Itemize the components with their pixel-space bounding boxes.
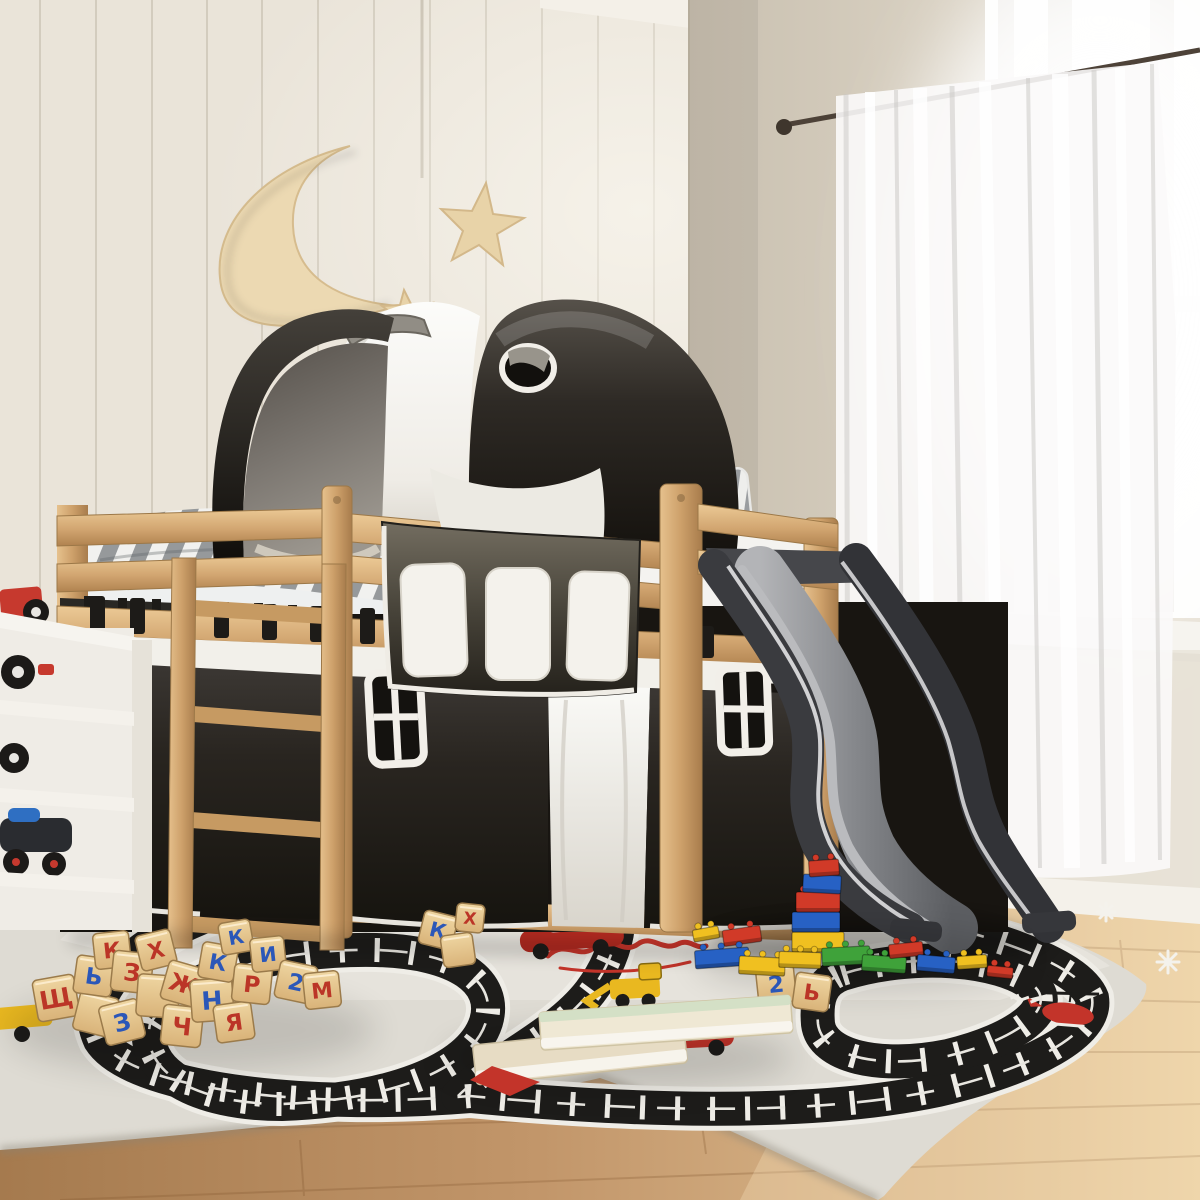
toy-block: Х: [455, 903, 486, 934]
block-letter: Х: [462, 908, 477, 929]
block-letter: Р: [242, 972, 261, 1000]
toy-block: Ь: [792, 972, 833, 1013]
ladder-stringer-left: [168, 558, 196, 948]
toy-brick: [779, 945, 822, 969]
block-letter: Щ: [37, 982, 75, 1016]
pocket-2: [486, 568, 550, 680]
block-letter: Я: [224, 1009, 245, 1037]
block-letter: И: [258, 942, 277, 968]
product-photo: ЩЬКЗЗХЧЖНККЯРИ2МКХ2Ь: [0, 0, 1200, 1200]
shelf-toy-wheel-mid: [0, 743, 29, 773]
block-letter: М: [310, 978, 334, 1005]
bed-post-mid: [660, 484, 702, 932]
toy-block: Я: [213, 1001, 256, 1044]
slide-foot-right: [1021, 910, 1076, 934]
toy-block: Щ: [32, 974, 81, 1023]
pocket-3: [566, 571, 630, 681]
toy-shelf: [0, 586, 152, 932]
block-letter: Ь: [802, 980, 822, 1007]
toy-block: К: [217, 918, 254, 955]
scene: ЩЬКЗЗХЧЖНККЯРИ2МКХ2Ь: [0, 0, 1200, 1200]
ladder-stringer-right: [320, 564, 346, 950]
pocket-1: [400, 563, 468, 677]
curtain-window-3: [719, 667, 770, 753]
hanging-pockets: [382, 522, 640, 696]
block-letter: Ч: [171, 1012, 193, 1042]
toy-block: [440, 932, 476, 968]
shelf-side-panel: [132, 640, 152, 932]
rod-finial: [776, 119, 792, 135]
toy-block: М: [302, 970, 342, 1010]
